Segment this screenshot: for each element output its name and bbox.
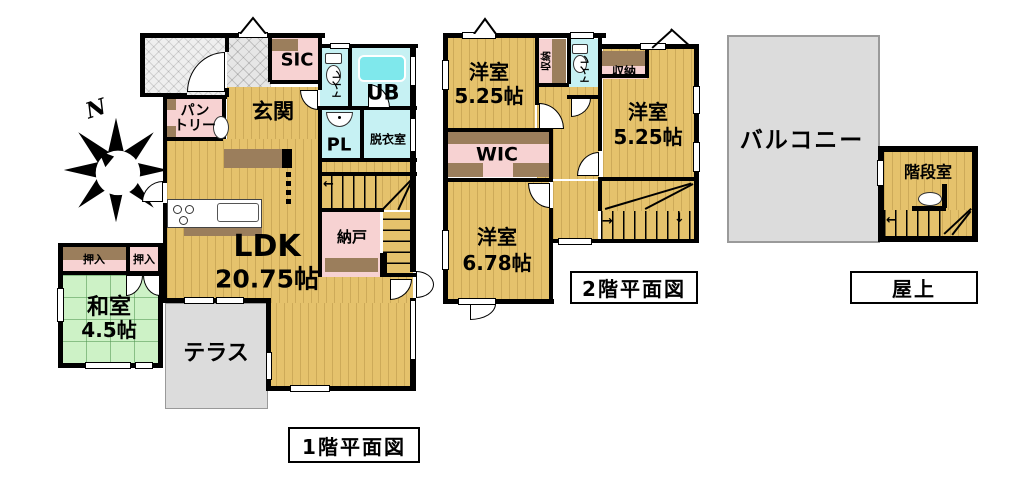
room-label-bedroom1: 洋室 [469, 62, 509, 84]
stairs-up-arrow: ← [323, 178, 334, 191]
room-size-bedroom1: 5.25帖 [454, 86, 523, 108]
room-label-closet1: 収納 [538, 51, 553, 71]
room-label-dressing: 脱衣室 [370, 134, 406, 147]
nando-shelf-strip [325, 258, 378, 272]
room-label-toilet-2f: トイレ [577, 55, 592, 85]
toilet-tank [572, 44, 588, 54]
window [290, 385, 330, 392]
window [57, 288, 64, 322]
room-label-toilet-1f: トイレ [329, 70, 344, 100]
stove-burner [185, 205, 194, 214]
room-label-closet-right: 押入 [133, 254, 155, 266]
room-size-bedroom2: 5.25帖 [613, 127, 682, 149]
window [266, 352, 272, 380]
window [410, 56, 416, 86]
room-label-ldk: LDK [233, 231, 300, 263]
stairs-arrow: ↓ [674, 212, 685, 225]
room-label-closet2: 収納 [612, 66, 636, 79]
room-label-terrace: テラス [183, 342, 249, 366]
floor2-title: 2階平面図 [570, 271, 698, 304]
hall-2f-lower [553, 181, 598, 239]
bedroom3-exterior-arc [470, 304, 496, 320]
kitchen-sink [217, 203, 259, 222]
room-ldk-south [268, 303, 413, 391]
room-label-ub: UB [366, 82, 399, 105]
bathtub [358, 55, 406, 82]
window [184, 297, 214, 304]
room-label-bedroom3: 洋室 [477, 227, 517, 249]
stairs-arrow: ← [886, 214, 897, 227]
window [410, 300, 416, 360]
room-label-nando: 納戸 [337, 229, 367, 245]
window [558, 238, 592, 245]
window [442, 60, 449, 90]
wic-shelf-strip [447, 131, 549, 144]
closet1-strip [552, 39, 566, 84]
room-size-washitsu: 4.5帖 [81, 320, 136, 342]
handrail-fixture [918, 192, 942, 206]
floor1-title: 1階平面図 [288, 427, 420, 463]
room-label-closet-left: 押入 [83, 254, 105, 266]
window [442, 230, 449, 270]
toilet-tank [325, 53, 342, 64]
roof-title: 屋上 [850, 271, 978, 304]
entrance-door-mark [472, 17, 498, 34]
window [410, 118, 416, 152]
room-label-sic: SIC [281, 50, 314, 69]
room-label-washitsu: 和室 [87, 296, 131, 320]
window [570, 32, 594, 39]
stove-burner [179, 216, 188, 225]
stairs-arrow: → [602, 215, 613, 228]
stairs-1f-lower [383, 212, 413, 275]
floor-plan-canvas: N [0, 0, 1024, 482]
hall-closet-strip [224, 149, 282, 168]
room-label-pantry: パン トリー [174, 104, 216, 134]
window [330, 43, 350, 49]
room-size-ldk: 20.75帖 [215, 266, 319, 293]
compass-star-icon [58, 112, 174, 228]
window [693, 86, 700, 114]
window [693, 142, 700, 172]
stove-burner [173, 205, 182, 214]
window [216, 297, 244, 304]
window [85, 362, 131, 369]
basin-drain [338, 116, 341, 119]
room-label-pl: PL [327, 135, 352, 154]
room-label-genkan: 玄関 [252, 101, 294, 124]
room-label-stair-room: 階段室 [904, 163, 952, 180]
entry-tile-area [227, 37, 271, 87]
room-size-bedroom3: 6.78帖 [462, 253, 531, 275]
room-label-bedroom2: 洋室 [628, 102, 668, 124]
door-opening [877, 160, 884, 186]
ldk-strip [318, 162, 413, 172]
room-label-balcony: バルコニー [740, 129, 865, 154]
room-label-wic: WIC [476, 145, 518, 166]
ldk-exterior-door-arc [416, 271, 434, 298]
window [135, 362, 153, 369]
wic-shelf-strip [513, 163, 549, 177]
entrance-door-mark [238, 16, 268, 34]
